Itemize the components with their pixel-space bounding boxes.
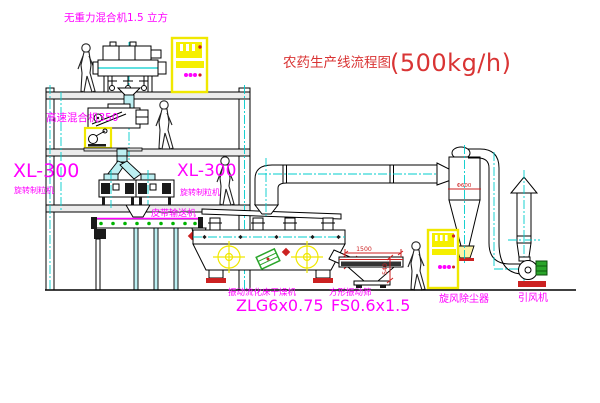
page-title-capacity: (500kg/h): [390, 49, 511, 77]
granulator-model-left-label: XL-300: [13, 160, 79, 182]
control-cabinet-lower: [428, 230, 458, 288]
indicator-light: [198, 45, 201, 48]
indicator-light: [452, 234, 455, 237]
cad-canvas: { "title": { "prefix": "农药生产线流程图", "capa…: [0, 0, 600, 403]
dryer-model-label: ZLG6x0.75: [236, 296, 324, 315]
granulator-right: [136, 170, 174, 208]
person-figure-second-floor: [156, 101, 173, 149]
granulator-name-right-label: 旋转制粒机: [180, 187, 220, 197]
screen-model-label: FS0.6x1.5: [331, 296, 410, 315]
fan-motor: [536, 261, 547, 275]
screen-length-dim: 1500: [356, 246, 372, 253]
fluid-bed-dryer: [193, 209, 345, 283]
induced-draft-fan: [518, 257, 547, 287]
page-title: 农药生产线流程图: [283, 55, 391, 71]
control-cabinet-upper: [172, 38, 207, 92]
person-figure-ground: [408, 242, 425, 290]
person-figure-top-floor: [78, 44, 95, 92]
screen-height-dim: 540: [382, 263, 389, 275]
belt-conveyor: [91, 217, 206, 290]
conveyor-drive: [94, 229, 106, 239]
process-flow-diagram: Φ600 1500: [0, 0, 600, 403]
granulator-discharge-chute: [126, 205, 150, 217]
gravity-mixer-label: 无重力混合机1.5 立方: [64, 11, 168, 24]
high-speed-mixer-label: 高速混合机350: [46, 111, 119, 124]
exhaust-duct: [255, 158, 464, 216]
cyclone-diameter-dim: Φ600: [457, 183, 472, 189]
granulator-model-right-label: XL-300: [177, 161, 236, 181]
belt-conveyor-label: 皮带输送机: [151, 207, 196, 219]
granulator-name-left-label: 旋转制粒机: [14, 185, 54, 195]
fan-label: 引风机: [518, 291, 548, 304]
cyclone-label: 旋风除尘器: [439, 292, 489, 305]
